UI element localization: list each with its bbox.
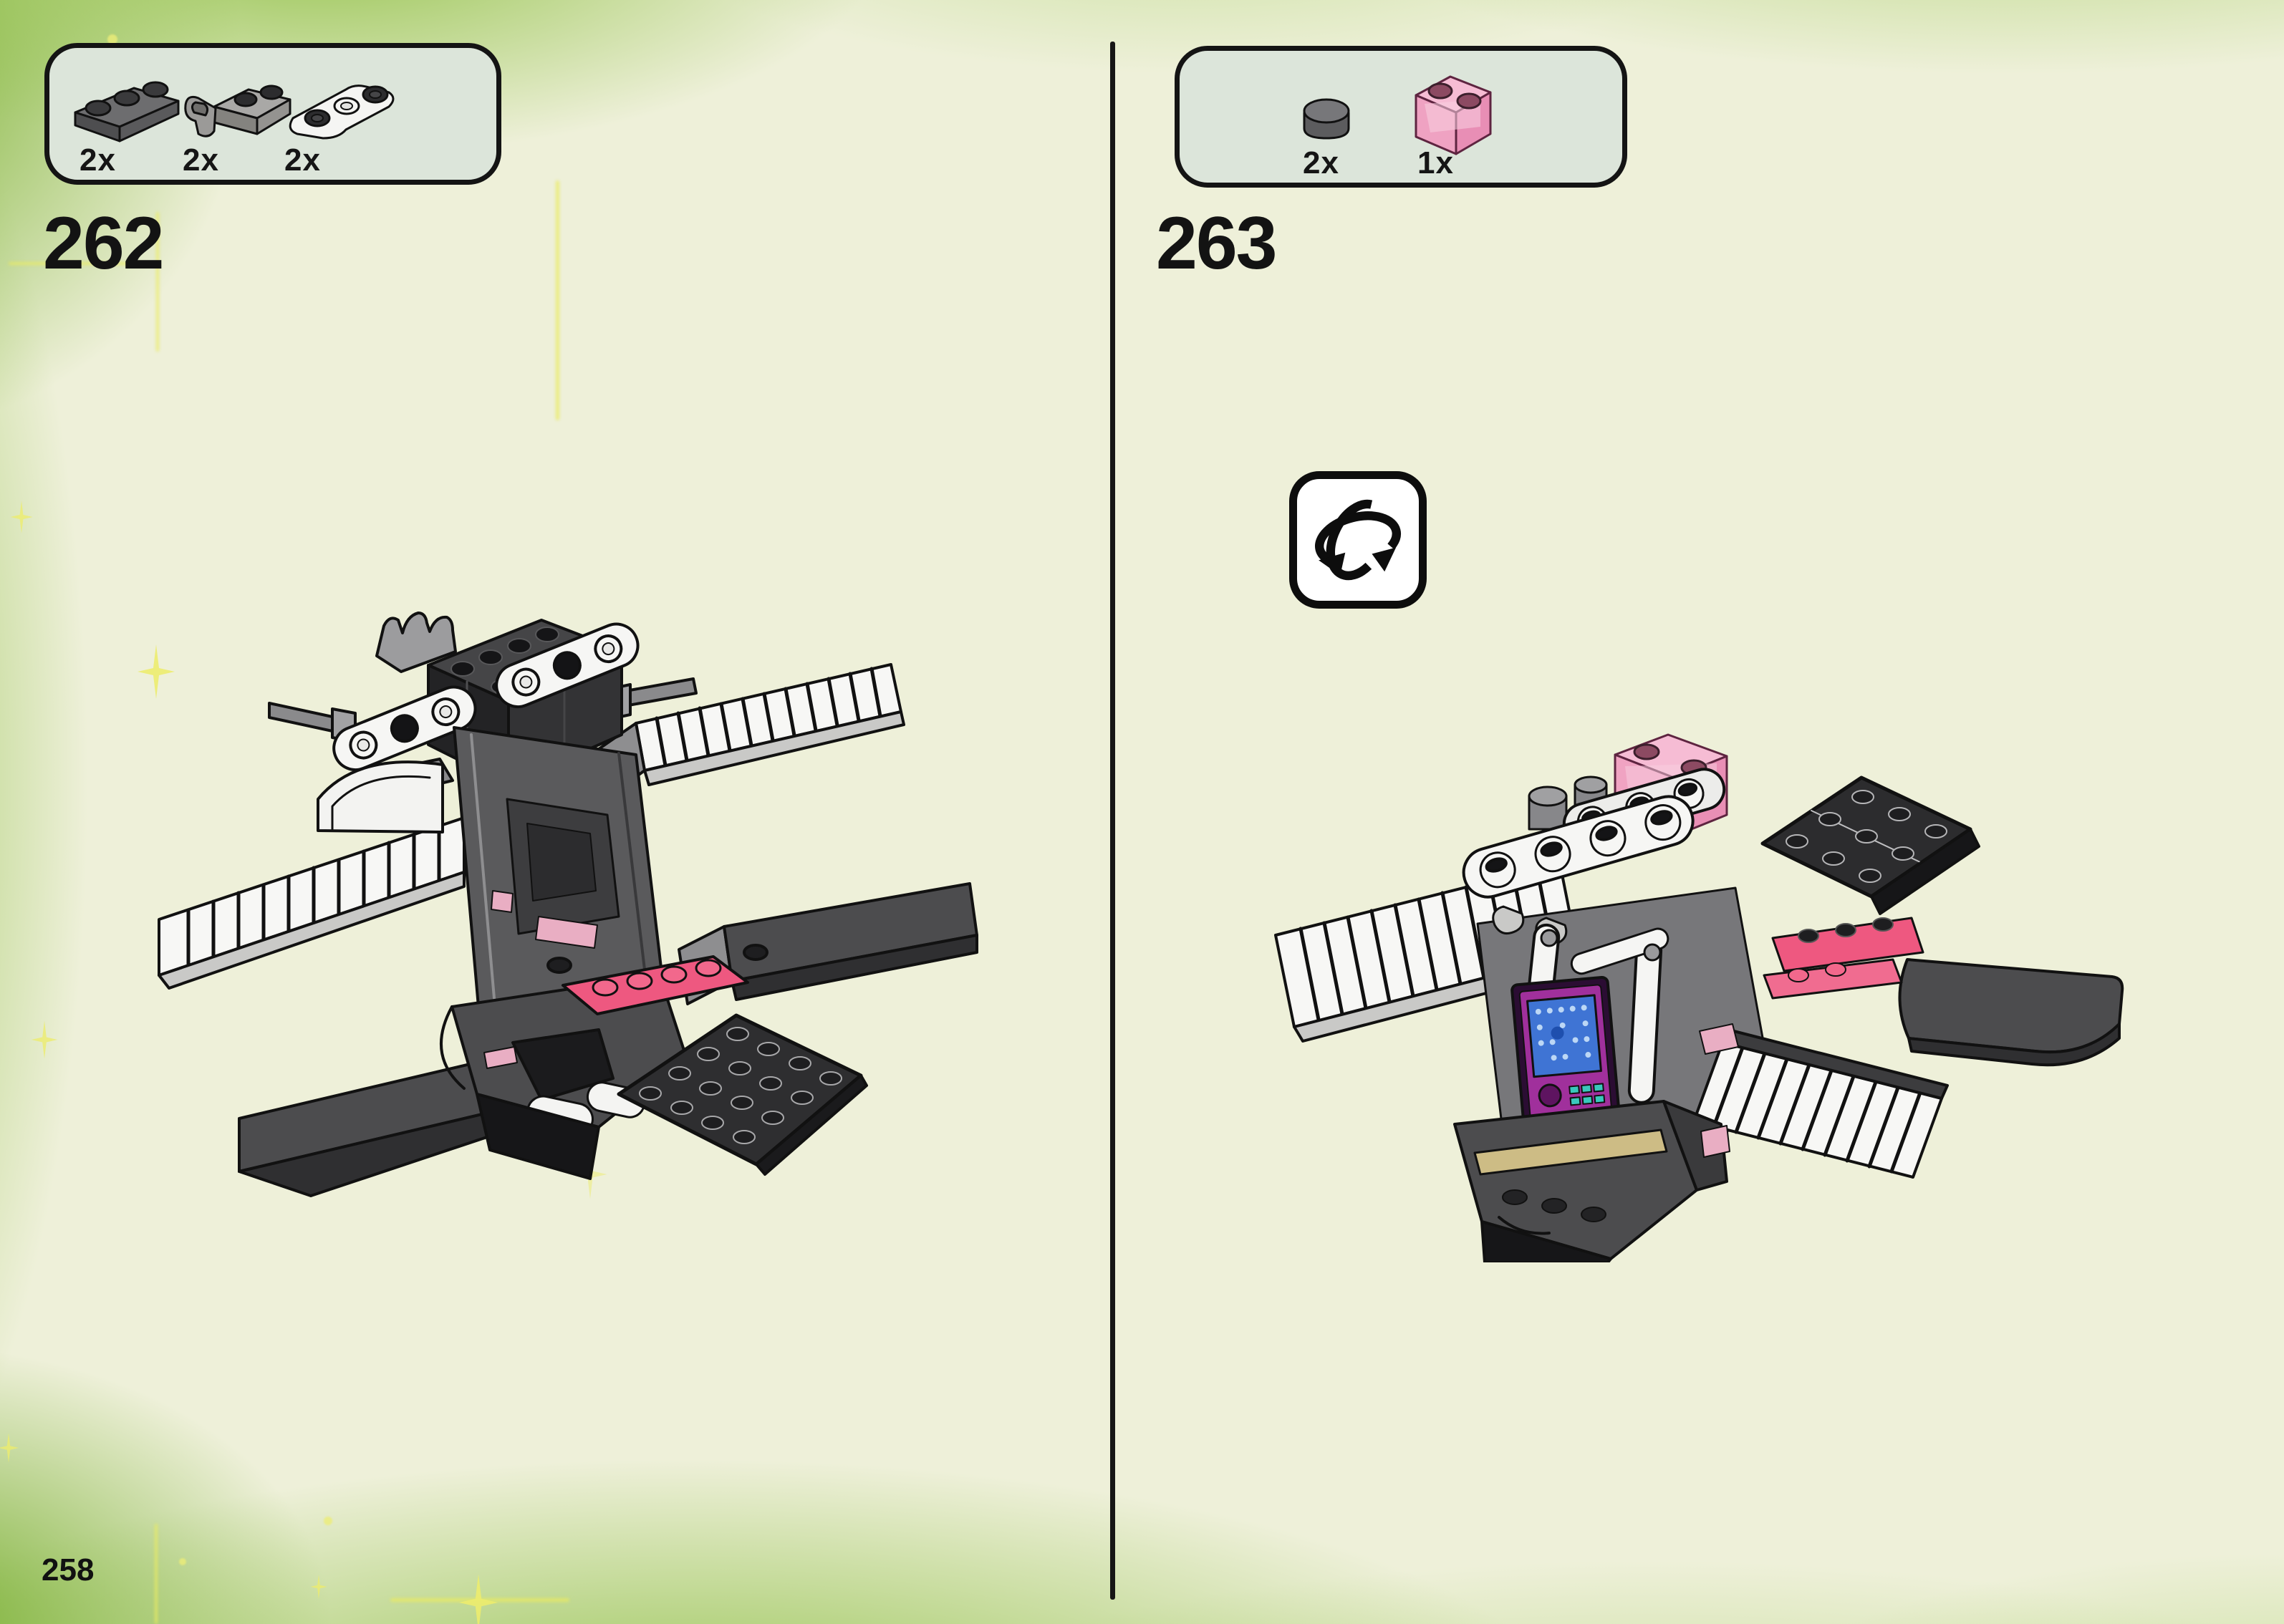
sparkle-dot [179, 1558, 186, 1565]
sparkle-streak [390, 1598, 569, 1602]
part-qty-label: 2x [183, 142, 219, 178]
panel-divider [1110, 42, 1115, 1600]
sparkle-streak [155, 1524, 158, 1624]
part-qty-label: 2x [1303, 145, 1339, 181]
step-263-model-illustration [1263, 723, 2126, 1262]
part-plate-1x3-rounded-white-icon [280, 67, 402, 145]
sparkle-star-icon [306, 1574, 332, 1600]
step-262-number: 262 [43, 206, 163, 281]
step-262-model-illustration [140, 583, 1049, 1247]
step-262-parts-box: 2x 2x 2x [44, 43, 501, 185]
page-number: 258 [42, 1552, 94, 1588]
sparkle-star-icon [0, 1432, 24, 1464]
sparkle-star-icon [4, 500, 39, 534]
sparkle-dot [324, 1517, 332, 1525]
sparkle-streak [556, 180, 559, 420]
step-263-parts-box: 2x 1x [1175, 46, 1627, 188]
sparkle-star-icon [24, 1020, 64, 1060]
part-qty-label: 1x [1417, 145, 1454, 181]
part-round-tile-dark-gray-icon [1294, 91, 1359, 148]
rotate-model-icon [1289, 471, 1427, 609]
step-263-number: 263 [1156, 206, 1276, 281]
part-qty-label: 2x [79, 142, 116, 178]
part-plate-1x3-dark-gray-icon [65, 68, 187, 147]
part-qty-label: 2x [284, 142, 321, 178]
instruction-page: 2x 2x 2x 262 [0, 0, 2284, 1624]
